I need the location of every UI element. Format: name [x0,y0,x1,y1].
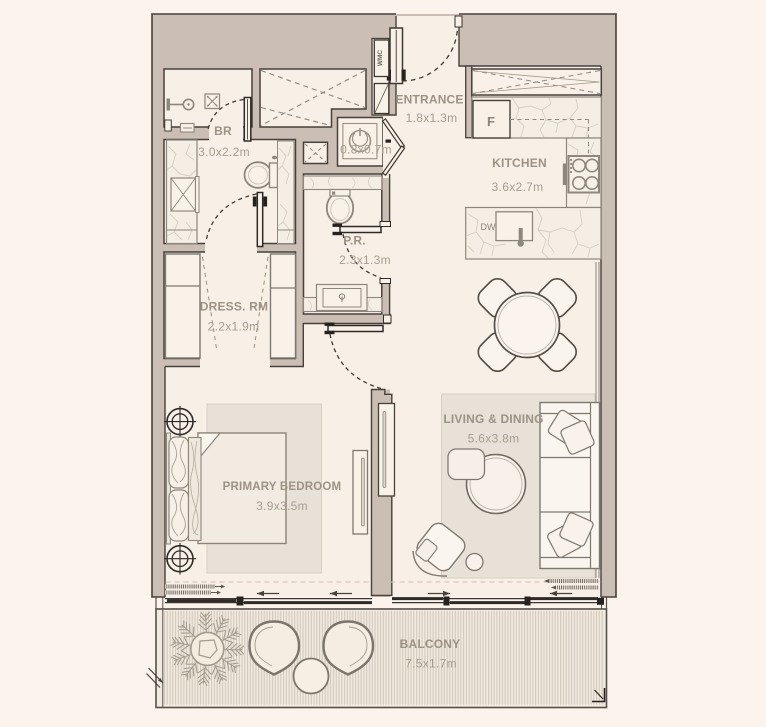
svg-text:WMC: WMC [377,50,384,67]
svg-text:2.2x1.9m: 2.2x1.9m [208,320,260,334]
svg-text:3.9x3.5m: 3.9x3.5m [256,499,308,513]
svg-text:ENTRANCE: ENTRANCE [395,93,463,107]
svg-text:BR: BR [214,124,232,138]
svg-text:KITCHEN: KITCHEN [492,156,547,170]
svg-text:3.0x2.2m: 3.0x2.2m [198,145,250,159]
svg-text:F: F [487,114,495,129]
svg-text:LIVING & DINING: LIVING & DINING [443,412,543,426]
svg-text:PRIMARY BEDROOM: PRIMARY BEDROOM [223,481,342,493]
svg-text:BALCONY: BALCONY [400,637,461,651]
svg-text:DRESS. RM: DRESS. RM [200,300,268,314]
svg-text:1.8x1.3m: 1.8x1.3m [406,111,458,125]
svg-text:P.R.: P.R. [343,234,366,248]
svg-text:DW: DW [481,222,496,232]
svg-text:2.3x1.3m: 2.3x1.3m [339,253,391,267]
svg-text:3.6x2.7m: 3.6x2.7m [492,180,544,194]
svg-text:5.6x3.8m: 5.6x3.8m [468,432,520,446]
svg-text:7.5x1.7m: 7.5x1.7m [405,657,457,671]
svg-text:0.8x0.7m: 0.8x0.7m [340,143,392,157]
